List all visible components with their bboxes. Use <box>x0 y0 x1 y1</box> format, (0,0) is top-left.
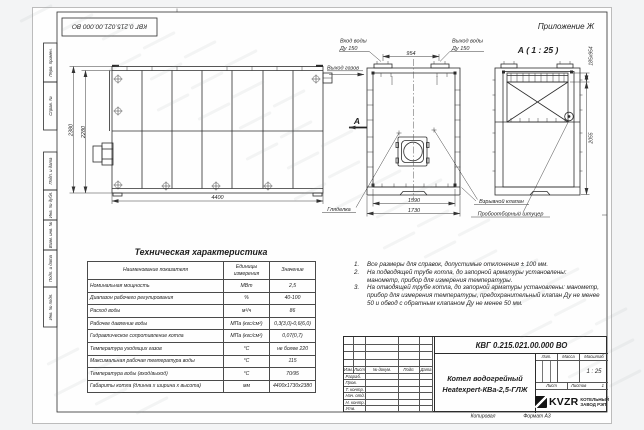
spec-cell: °С <box>224 355 270 368</box>
title-block-signature-grid: Изм. Лист № докум. Подп. Дата Разраб. Пр… <box>344 337 435 411</box>
table-row: Номинальная мощностьМВт2,5 <box>88 280 316 293</box>
spec-cell: Рабочее давление воды <box>88 317 224 330</box>
spec-cell: Максимальная рабочая температура воды <box>88 355 224 368</box>
sheets-label: Листов <box>571 383 586 389</box>
spec-cell: °С <box>224 342 270 355</box>
note-text: На отводящей трубе котла, до запорной ар… <box>367 284 600 307</box>
note-number: 1. <box>352 261 367 269</box>
spec-cell: Температура воды (вход/выход) <box>88 368 224 381</box>
mass-label: Масса <box>558 354 580 361</box>
dim-height-inner: 2280 <box>81 125 87 139</box>
spec-col-header: Единицы измерения <box>224 262 270 280</box>
sampling-fitting-label: Пробоотборный штуцер <box>478 211 544 218</box>
side-label: Подп. и дата <box>48 157 53 185</box>
title-block: Изм. Лист № докум. Подп. Дата Разраб. Пр… <box>343 336 607 412</box>
title-block-right: Лит. Масса Масштаб 1 : 25 Лист Листов 1 … <box>536 354 608 413</box>
side-label: Перв. примен. <box>48 48 53 77</box>
side-label: Подп. и дата <box>48 254 53 282</box>
spec-cell: мм <box>224 380 270 393</box>
note-item: 2. На подводящей трубе котла, до запорно… <box>352 269 600 285</box>
spec-cell: м³/ч <box>224 305 270 318</box>
top-stamp-number: КВГ 0.215.021.00.000 ВО <box>72 23 147 30</box>
boiler-front-view: Вход воды Ду 150 Выход воды Ду 150 954 В… <box>322 39 484 217</box>
spec-cell: Диапазон рабочего регулирования <box>88 292 224 305</box>
spec-cell: % <box>224 292 270 305</box>
spec-cell: Габариты котла (длинна х ширина х высота… <box>88 380 224 393</box>
scale-value: 1 : 25 <box>580 361 608 382</box>
spec-section: Техническая характеристика Наименование … <box>87 246 315 393</box>
table-row: Расход водым³/ч86 <box>88 305 316 318</box>
spec-cell: 70/95 <box>270 368 316 381</box>
lit-cells <box>536 361 558 382</box>
dim-gas-window: 185х954 <box>589 46 595 65</box>
note-item: 3. На отводящей трубе котла, до запорной… <box>352 284 600 307</box>
gas-outlet-label: Выход газов <box>327 65 359 71</box>
section-arrow-letter: А <box>353 116 360 126</box>
spec-cell: не более 220 <box>270 342 316 355</box>
dim-width-inner: 1590 <box>408 198 421 204</box>
spec-col-header: Значение <box>270 262 316 280</box>
product-name: Котел водогрейный Heatexpert-КВа-2,5-ГЛЖ <box>435 354 536 413</box>
company-name-line2: ЗАВОД РЭП <box>580 402 609 407</box>
spec-cell: Гидравлическое сопротивление котла <box>88 330 224 343</box>
sheets-value: 1 <box>602 383 604 389</box>
frame-side-labels: Перв. примен. Справ. № Подп. и дата Инв.… <box>44 43 58 327</box>
spec-cell: Номинальная мощность <box>88 280 224 293</box>
page-background: Перв. примен. Справ. № Подп. и дата Инв.… <box>0 0 644 430</box>
side-label: Инв. № подл. <box>48 294 53 321</box>
table-row: Рабочее давление водыМПа (кгс/см²)0,3(3,… <box>88 317 316 330</box>
table-row: Габариты котла (длинна х ширина х высота… <box>88 380 316 393</box>
side-label: Инв. № дубл. <box>48 192 53 218</box>
note-text: Все размеры для справок, допустимые откл… <box>367 261 600 269</box>
appendix-label: Приложение Ж <box>538 22 595 31</box>
lit-label: Лит. <box>536 354 558 361</box>
doc-number: КВГ 0.215.021.00.000 ВО <box>435 337 608 354</box>
sight-glass-label: Гляделка <box>327 207 350 213</box>
product-name-line2: Heatexpert-КВа-2,5-ГЛЖ <box>442 384 527 395</box>
explosion-valve-label: Взрывной клапан <box>479 198 524 205</box>
dim-section-height: 2055 <box>589 132 595 144</box>
spec-cell: 40-100 <box>270 292 316 305</box>
water-outlet-dn: Ду 150 <box>451 46 470 52</box>
scale-label: Масштаб <box>580 354 608 361</box>
side-label: Справ. № <box>48 96 53 116</box>
spec-cell: Расход воды <box>88 305 224 318</box>
spec-cell: Температура уходящих газов <box>88 342 224 355</box>
note-number: 2. <box>352 269 367 285</box>
dim-nozzle-span: 954 <box>406 51 415 57</box>
spec-title: Техническая характеристика <box>87 246 315 259</box>
table-row: Диапазон рабочего регулирования%40-100 <box>88 292 316 305</box>
spec-table: Наименование показателя Единицы измерени… <box>87 261 316 393</box>
spec-cell: МВт <box>224 280 270 293</box>
notes: 1. Все размеры для справок, допустимые о… <box>352 261 600 308</box>
section-view-title: А ( 1 : 25 ) <box>517 45 559 55</box>
spec-cell: 0,3(3,0)-0,6(6,0) <box>270 317 316 330</box>
note-item: 1. Все размеры для справок, допустимые о… <box>352 261 600 269</box>
product-name-line1: Котел водогрейный <box>447 373 522 384</box>
table-row: Максимальная рабочая температура воды°С1… <box>88 355 316 368</box>
mass-cell <box>558 361 580 382</box>
spec-cell: 0,07(0,7) <box>270 330 316 343</box>
note-text: На подводящей трубе котла, до запорной а… <box>367 269 600 285</box>
boiler-side-view: 2380 2280 4400 <box>69 65 333 204</box>
boiler-section-view: А ( 1 : 25 ) <box>462 45 595 218</box>
table-row: Температура воды (вход/выход)°С70/95 <box>88 368 316 381</box>
format-label: Формат А3 <box>523 414 551 420</box>
dim-height-outer: 2380 <box>69 123 75 137</box>
sign-row-label: Утв. <box>344 406 366 412</box>
water-inlet-dn: Ду 150 <box>339 46 358 52</box>
top-stamp: КВГ 0.215.021.00.000 ВО <box>62 18 157 36</box>
table-row: Гидравлическое сопротивление котлаМПа (к… <box>88 330 316 343</box>
kvzr-logo-icon <box>535 396 547 408</box>
company-logo: KVZR КОТЕЛЬНЫЙ ЗАВОД РЭП <box>536 390 608 413</box>
dim-width-outer: 1730 <box>408 208 421 214</box>
company-abbr: KVZR <box>549 396 578 408</box>
copied-by-label: Копировал <box>471 414 496 420</box>
bolt-markers <box>114 75 321 191</box>
spec-cell: 4400х1730х2380 <box>270 380 316 393</box>
dim-length: 4400 <box>211 195 224 201</box>
water-inlet-label: Вход воды <box>340 39 367 45</box>
sheet-label: Лист <box>536 383 568 389</box>
spec-col-header: Наименование показателя <box>88 262 224 280</box>
water-outlet-label: Выход воды <box>452 39 483 45</box>
spec-cell: °С <box>224 368 270 381</box>
spec-cell: МПа (кгс/см²) <box>224 317 270 330</box>
spec-cell: 2,5 <box>270 280 316 293</box>
side-label: Взам. инв. № <box>48 221 53 248</box>
spec-cell: 86 <box>270 305 316 318</box>
spec-cell: МПа (кгс/см²) <box>224 330 270 343</box>
table-row: Температура уходящих газов°Сне более 220 <box>88 342 316 355</box>
spec-cell: 115 <box>270 355 316 368</box>
note-number: 3. <box>352 284 367 307</box>
